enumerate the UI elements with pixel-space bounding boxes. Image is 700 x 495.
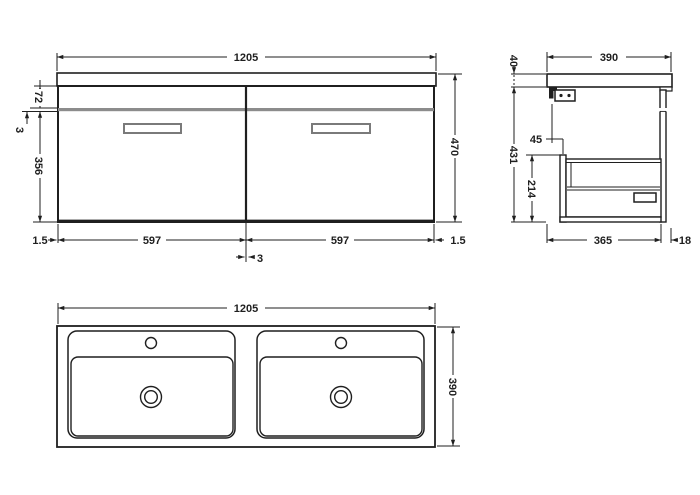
dim-label-side-carcass-depth: 365 [594, 235, 612, 247]
dim-label-front-left-drawer: 597 [143, 235, 161, 247]
technical-drawing-canvas: 1205 470 72 3 356 1.5 597 597 1.5 3 [0, 0, 700, 495]
dim-label-side-drawer-box: 214 [525, 180, 537, 199]
plan-right-tap-hole [336, 338, 347, 349]
dim-label-front-right-drawer: 597 [331, 235, 349, 247]
dim-label-front-center-gap: 3 [257, 253, 263, 265]
dim-label-side-back-clearance: 45 [530, 134, 542, 146]
dim-label-side-depth: 390 [600, 52, 618, 64]
dim-label-front-top-band: 72 [32, 91, 44, 103]
front-countertop [57, 73, 436, 86]
plan-view: 1205 390 [57, 302, 460, 447]
bracket-screw-hole [567, 94, 570, 97]
vanity-dimension-drawing: 1205 470 72 3 356 1.5 597 597 1.5 3 [0, 0, 700, 495]
side-view: 390 40 431 45 214 365 18 [507, 51, 691, 247]
fascia-gap-notch [659, 108, 667, 111]
front-right-drawer-handle [312, 124, 370, 133]
bracket-screw-hole [559, 94, 562, 97]
dim-label-front-gap-left: 3 [13, 127, 25, 133]
plan-right-drain-inner [335, 391, 348, 404]
dim-label-side-worktop: 40 [507, 55, 519, 67]
side-drawer-box [566, 159, 661, 217]
dim-label-plan-depth: 390 [446, 378, 458, 396]
dim-label-front-drawer-height: 356 [32, 157, 44, 175]
dim-label-front-left-margin: 1.5 [32, 235, 47, 247]
wall-bracket-plate [555, 90, 575, 101]
drawer-runner-slot [634, 193, 656, 202]
dim-label-front-right-margin: 1.5 [450, 235, 465, 247]
side-countertop [547, 74, 672, 87]
dim-label-side-overhang: 18 [679, 235, 691, 247]
front-left-drawer-handle [124, 124, 181, 133]
front-view: 1205 470 72 3 356 1.5 597 597 1.5 3 [13, 51, 466, 265]
wall-bracket-hook [549, 88, 554, 99]
side-back-rail [560, 155, 566, 222]
side-bottom-panel [560, 217, 661, 222]
plan-left-tap-hole [146, 338, 157, 349]
dim-label-side-carcass-height: 431 [507, 146, 519, 164]
plan-left-drain-inner [145, 391, 158, 404]
dim-label-front-width: 1205 [234, 52, 258, 64]
dim-label-front-height: 470 [448, 138, 460, 156]
dim-label-plan-width: 1205 [234, 303, 258, 315]
